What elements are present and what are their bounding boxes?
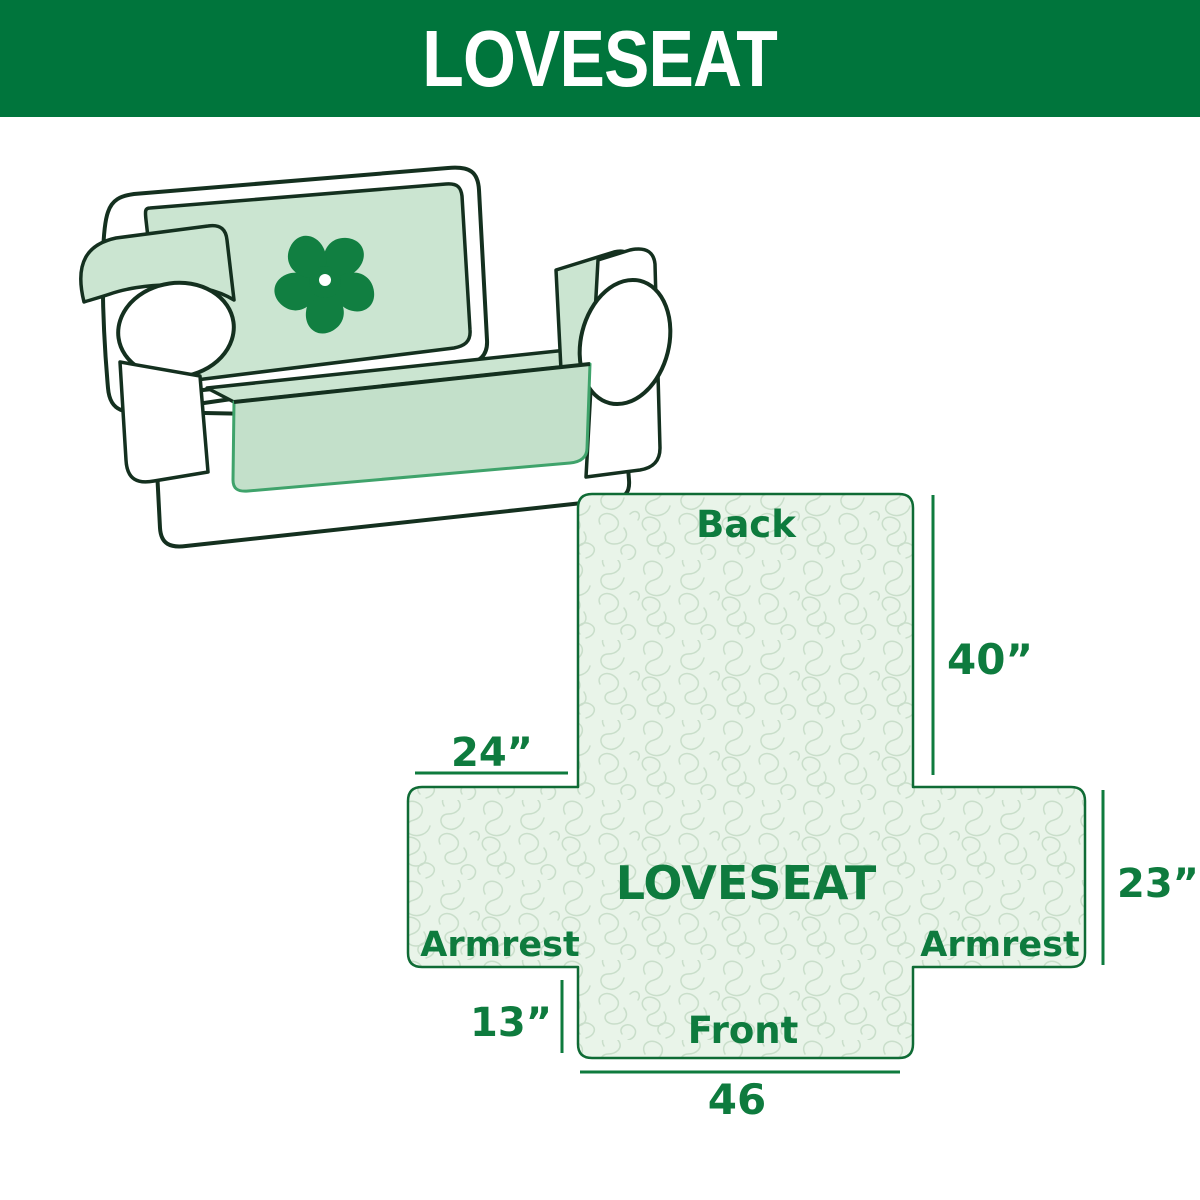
front-height-dimension: 13” bbox=[470, 1000, 552, 1046]
front-width-dimension: 46 bbox=[708, 1075, 766, 1124]
cover-cross-shape bbox=[408, 494, 1085, 1058]
diagram-center-label: LOVESEAT bbox=[616, 856, 877, 910]
sofa-left-arm-body bbox=[120, 362, 208, 482]
dimensions-svg: Back Front Armrest Armrest LOVESEAT 40” … bbox=[390, 478, 1200, 1134]
armrest-left-label: Armrest bbox=[420, 925, 579, 965]
armrest-width-dimension: 24” bbox=[451, 730, 533, 776]
back-label: Back bbox=[696, 503, 797, 546]
page-title: LOVESEAT bbox=[423, 19, 778, 99]
armrest-right-label: Armrest bbox=[920, 925, 1079, 965]
cover-dimensions-diagram: Back Front Armrest Armrest LOVESEAT 40” … bbox=[390, 478, 1200, 1134]
back-height-dimension: 40” bbox=[947, 635, 1033, 684]
armrest-height-dimension: 23” bbox=[1117, 861, 1199, 907]
front-label: Front bbox=[688, 1009, 799, 1052]
header-banner: LOVESEAT bbox=[0, 0, 1200, 117]
